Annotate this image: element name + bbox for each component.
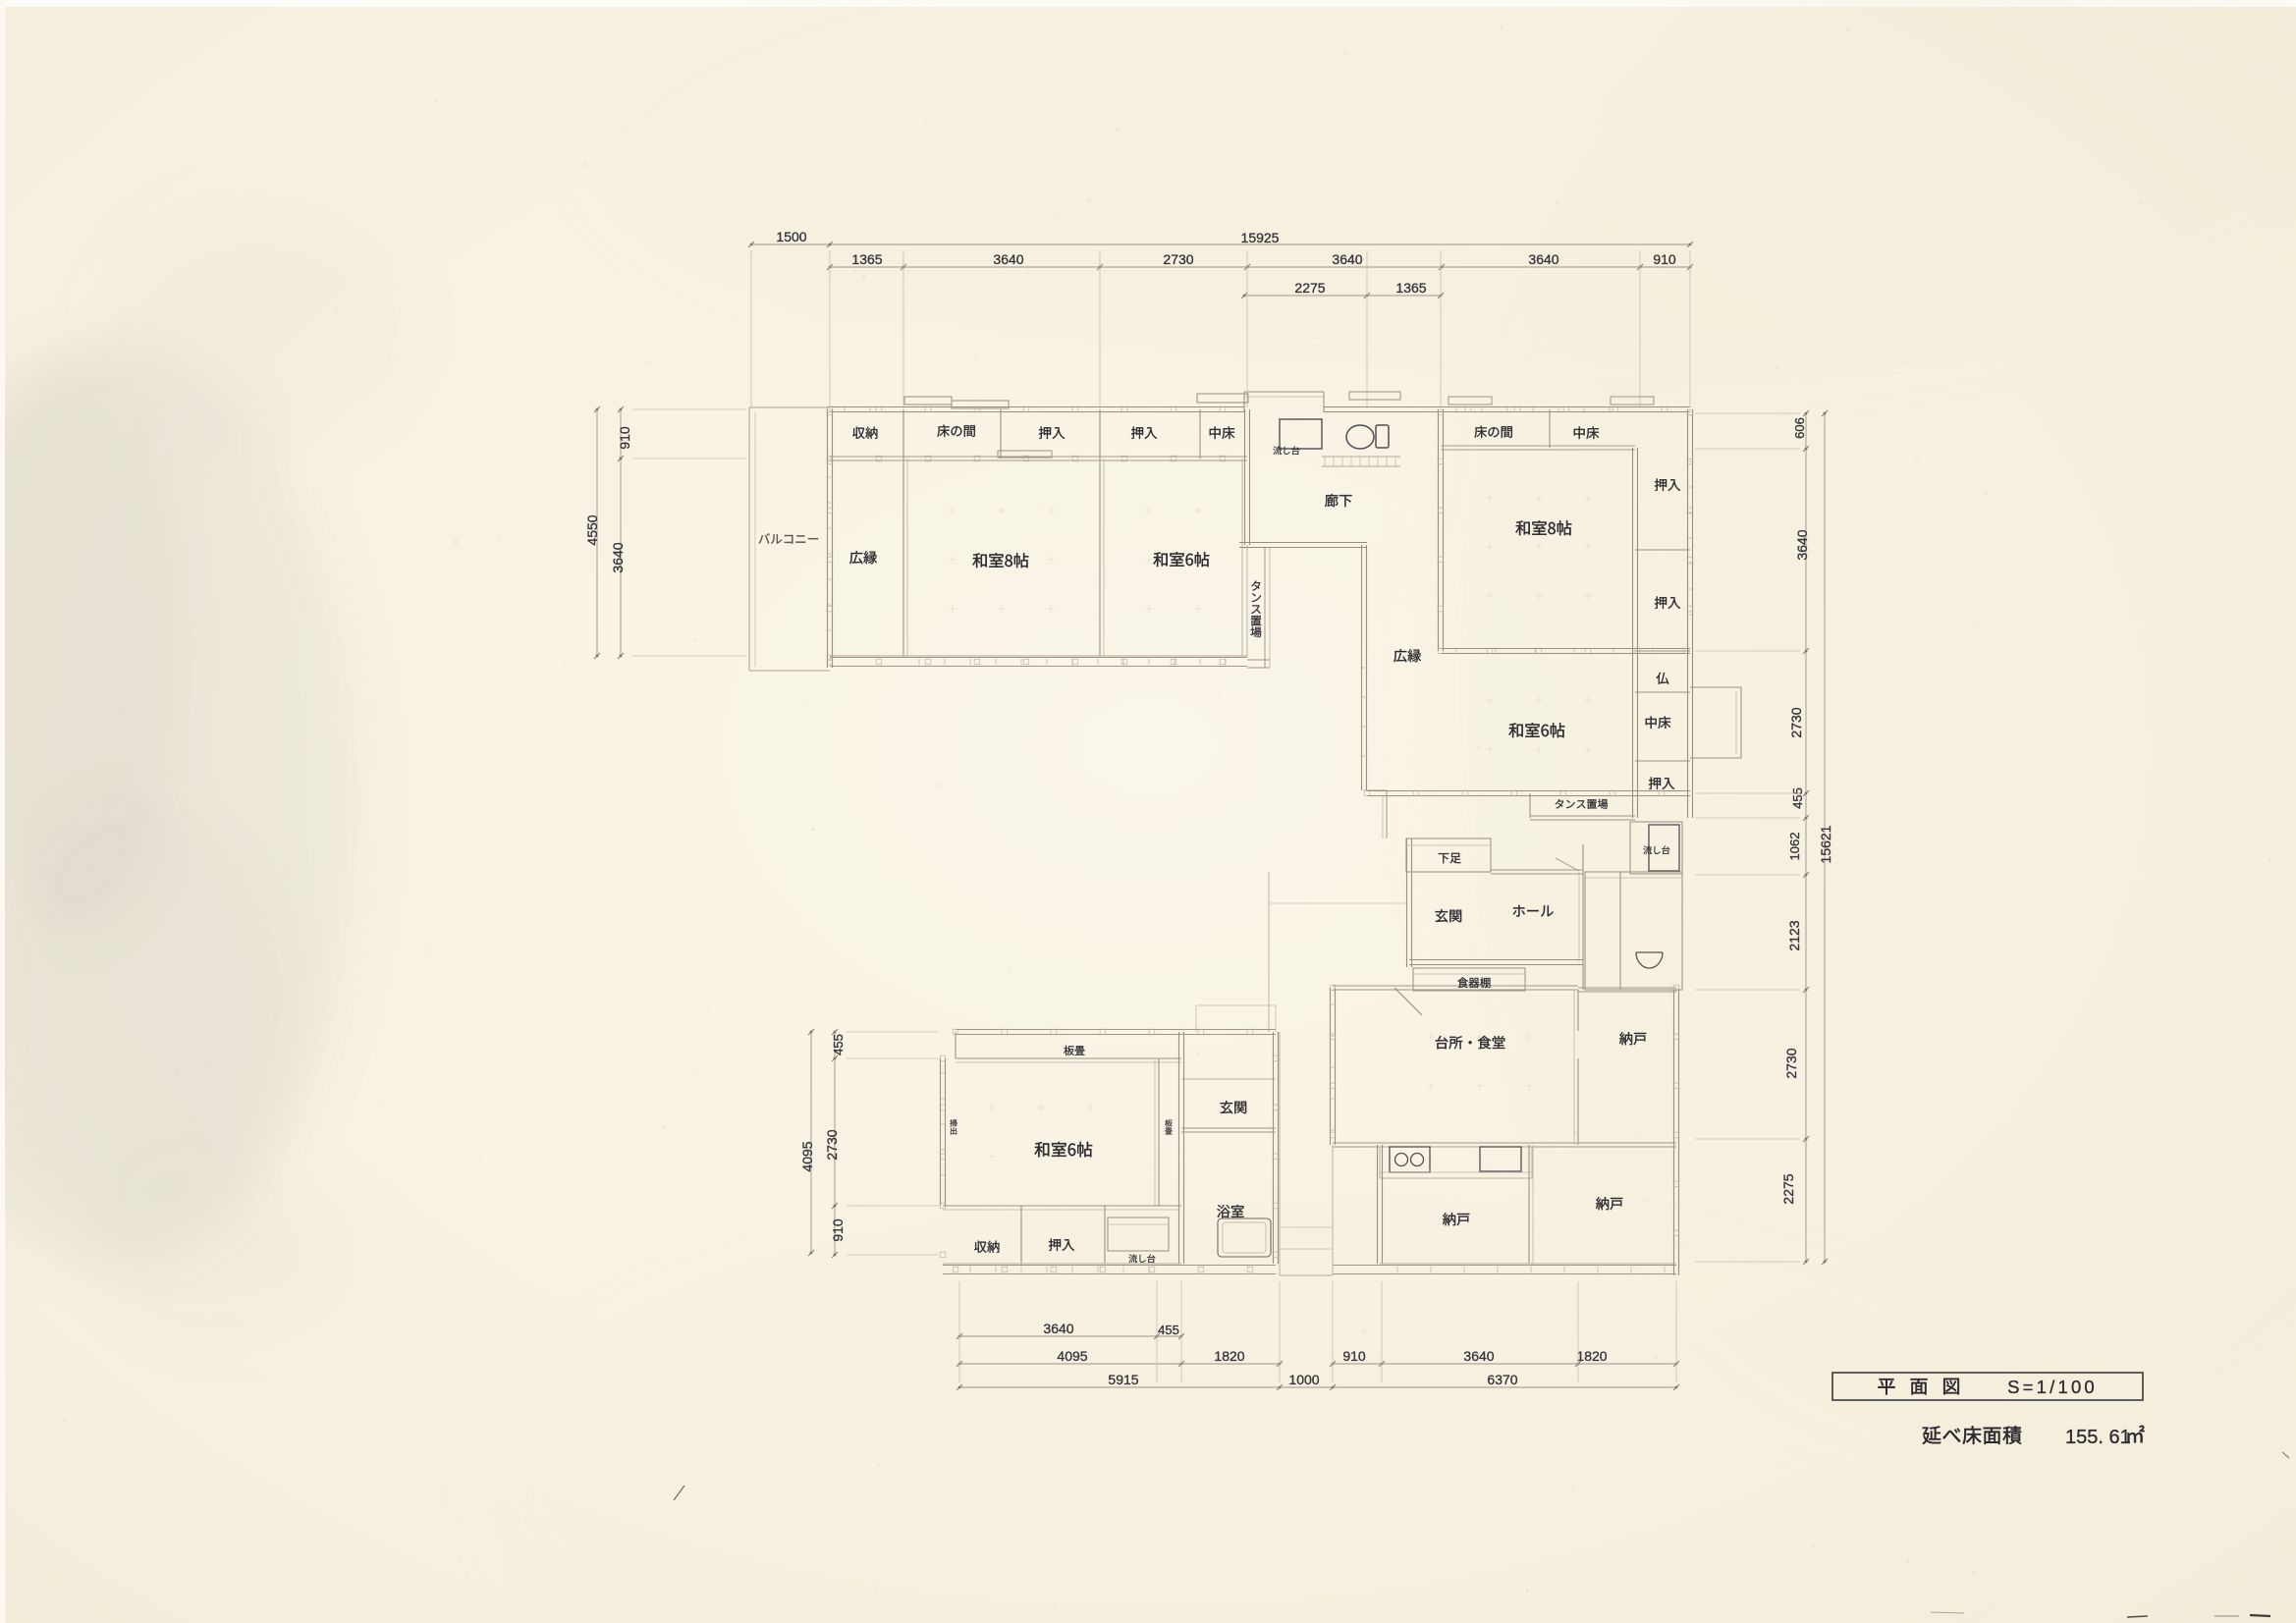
svg-text:2275: 2275 bbox=[1294, 280, 1325, 296]
svg-text:3640: 3640 bbox=[1332, 251, 1362, 267]
svg-text:3640: 3640 bbox=[1463, 1348, 1494, 1364]
svg-text:2123: 2123 bbox=[1786, 920, 1802, 950]
svg-text:5915: 5915 bbox=[1108, 1372, 1138, 1387]
svg-text:910: 910 bbox=[617, 426, 632, 450]
svg-text:910: 910 bbox=[1342, 1348, 1366, 1364]
svg-text:3640: 3640 bbox=[610, 542, 626, 572]
svg-text:2730: 2730 bbox=[1783, 1048, 1799, 1078]
svg-text:1062: 1062 bbox=[1787, 833, 1802, 861]
svg-text:2730: 2730 bbox=[824, 1129, 840, 1160]
svg-text:155. 61: 155. 61 bbox=[2065, 1427, 2131, 1448]
svg-text:6370: 6370 bbox=[1487, 1372, 1517, 1387]
svg-text:1365: 1365 bbox=[851, 251, 882, 267]
svg-text:455: 455 bbox=[1790, 787, 1805, 809]
svg-text:S=1/100: S=1/100 bbox=[2007, 1377, 2098, 1397]
svg-text:455: 455 bbox=[1158, 1323, 1179, 1337]
svg-text:1000: 1000 bbox=[1288, 1372, 1319, 1387]
svg-text:1365: 1365 bbox=[1395, 280, 1426, 296]
svg-text:3640: 3640 bbox=[1043, 1321, 1073, 1336]
svg-text:910: 910 bbox=[1653, 251, 1676, 267]
svg-text:15621: 15621 bbox=[1818, 825, 1833, 863]
svg-text:1820: 1820 bbox=[1214, 1348, 1244, 1364]
svg-text:2730: 2730 bbox=[1163, 251, 1193, 267]
svg-text:3640: 3640 bbox=[993, 251, 1023, 267]
svg-text:4095: 4095 bbox=[1057, 1348, 1087, 1364]
svg-text:455: 455 bbox=[831, 1034, 846, 1055]
svg-text:1500: 1500 bbox=[776, 229, 806, 244]
svg-text:15925: 15925 bbox=[1241, 230, 1280, 245]
svg-text:3640: 3640 bbox=[1794, 529, 1810, 560]
svg-text:1820: 1820 bbox=[1576, 1348, 1607, 1364]
svg-text:2730: 2730 bbox=[1788, 707, 1804, 737]
svg-text:606: 606 bbox=[1792, 417, 1807, 439]
svg-text:2275: 2275 bbox=[1780, 1173, 1796, 1204]
svg-text:4095: 4095 bbox=[799, 1141, 815, 1171]
svg-text:3640: 3640 bbox=[1528, 251, 1558, 267]
svg-text:4550: 4550 bbox=[584, 514, 600, 545]
svg-text:910: 910 bbox=[830, 1218, 846, 1242]
